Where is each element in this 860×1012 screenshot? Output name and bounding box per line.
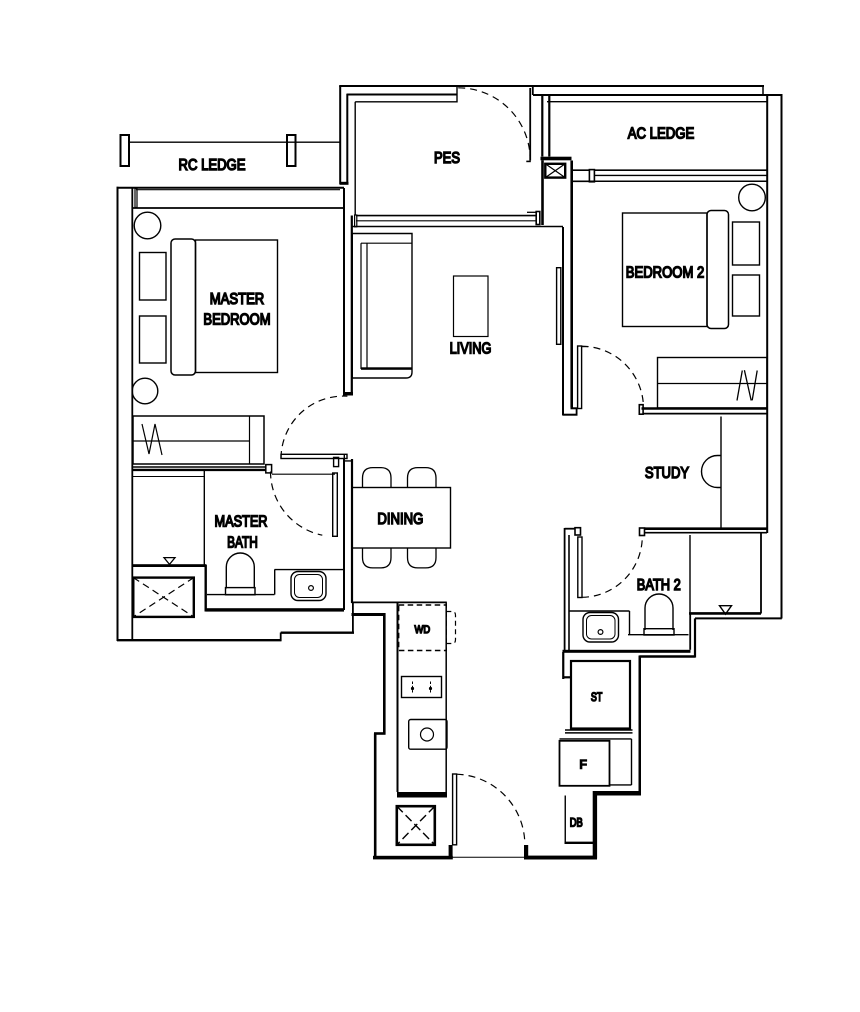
svg-text:DINING: DINING xyxy=(377,511,423,528)
svg-text:ST: ST xyxy=(591,690,603,704)
svg-text:WD: WD xyxy=(415,624,431,636)
svg-text:RC LEDGE: RC LEDGE xyxy=(179,157,246,174)
svg-text:BATH 2: BATH 2 xyxy=(637,577,681,594)
svg-text:F: F xyxy=(580,758,587,772)
svg-text:BEDROOM 2: BEDROOM 2 xyxy=(626,265,705,282)
svg-text:MASTER: MASTER xyxy=(210,291,265,308)
svg-text:LIVING: LIVING xyxy=(450,341,492,358)
svg-text:MASTER: MASTER xyxy=(215,514,268,531)
svg-text:PES: PES xyxy=(434,150,460,167)
svg-text:DB: DB xyxy=(570,816,583,830)
svg-text:STUDY: STUDY xyxy=(645,465,689,482)
svg-text:AC LEDGE: AC LEDGE xyxy=(628,125,695,142)
svg-text:BEDROOM: BEDROOM xyxy=(203,312,270,329)
svg-text:BATH: BATH xyxy=(227,534,258,551)
